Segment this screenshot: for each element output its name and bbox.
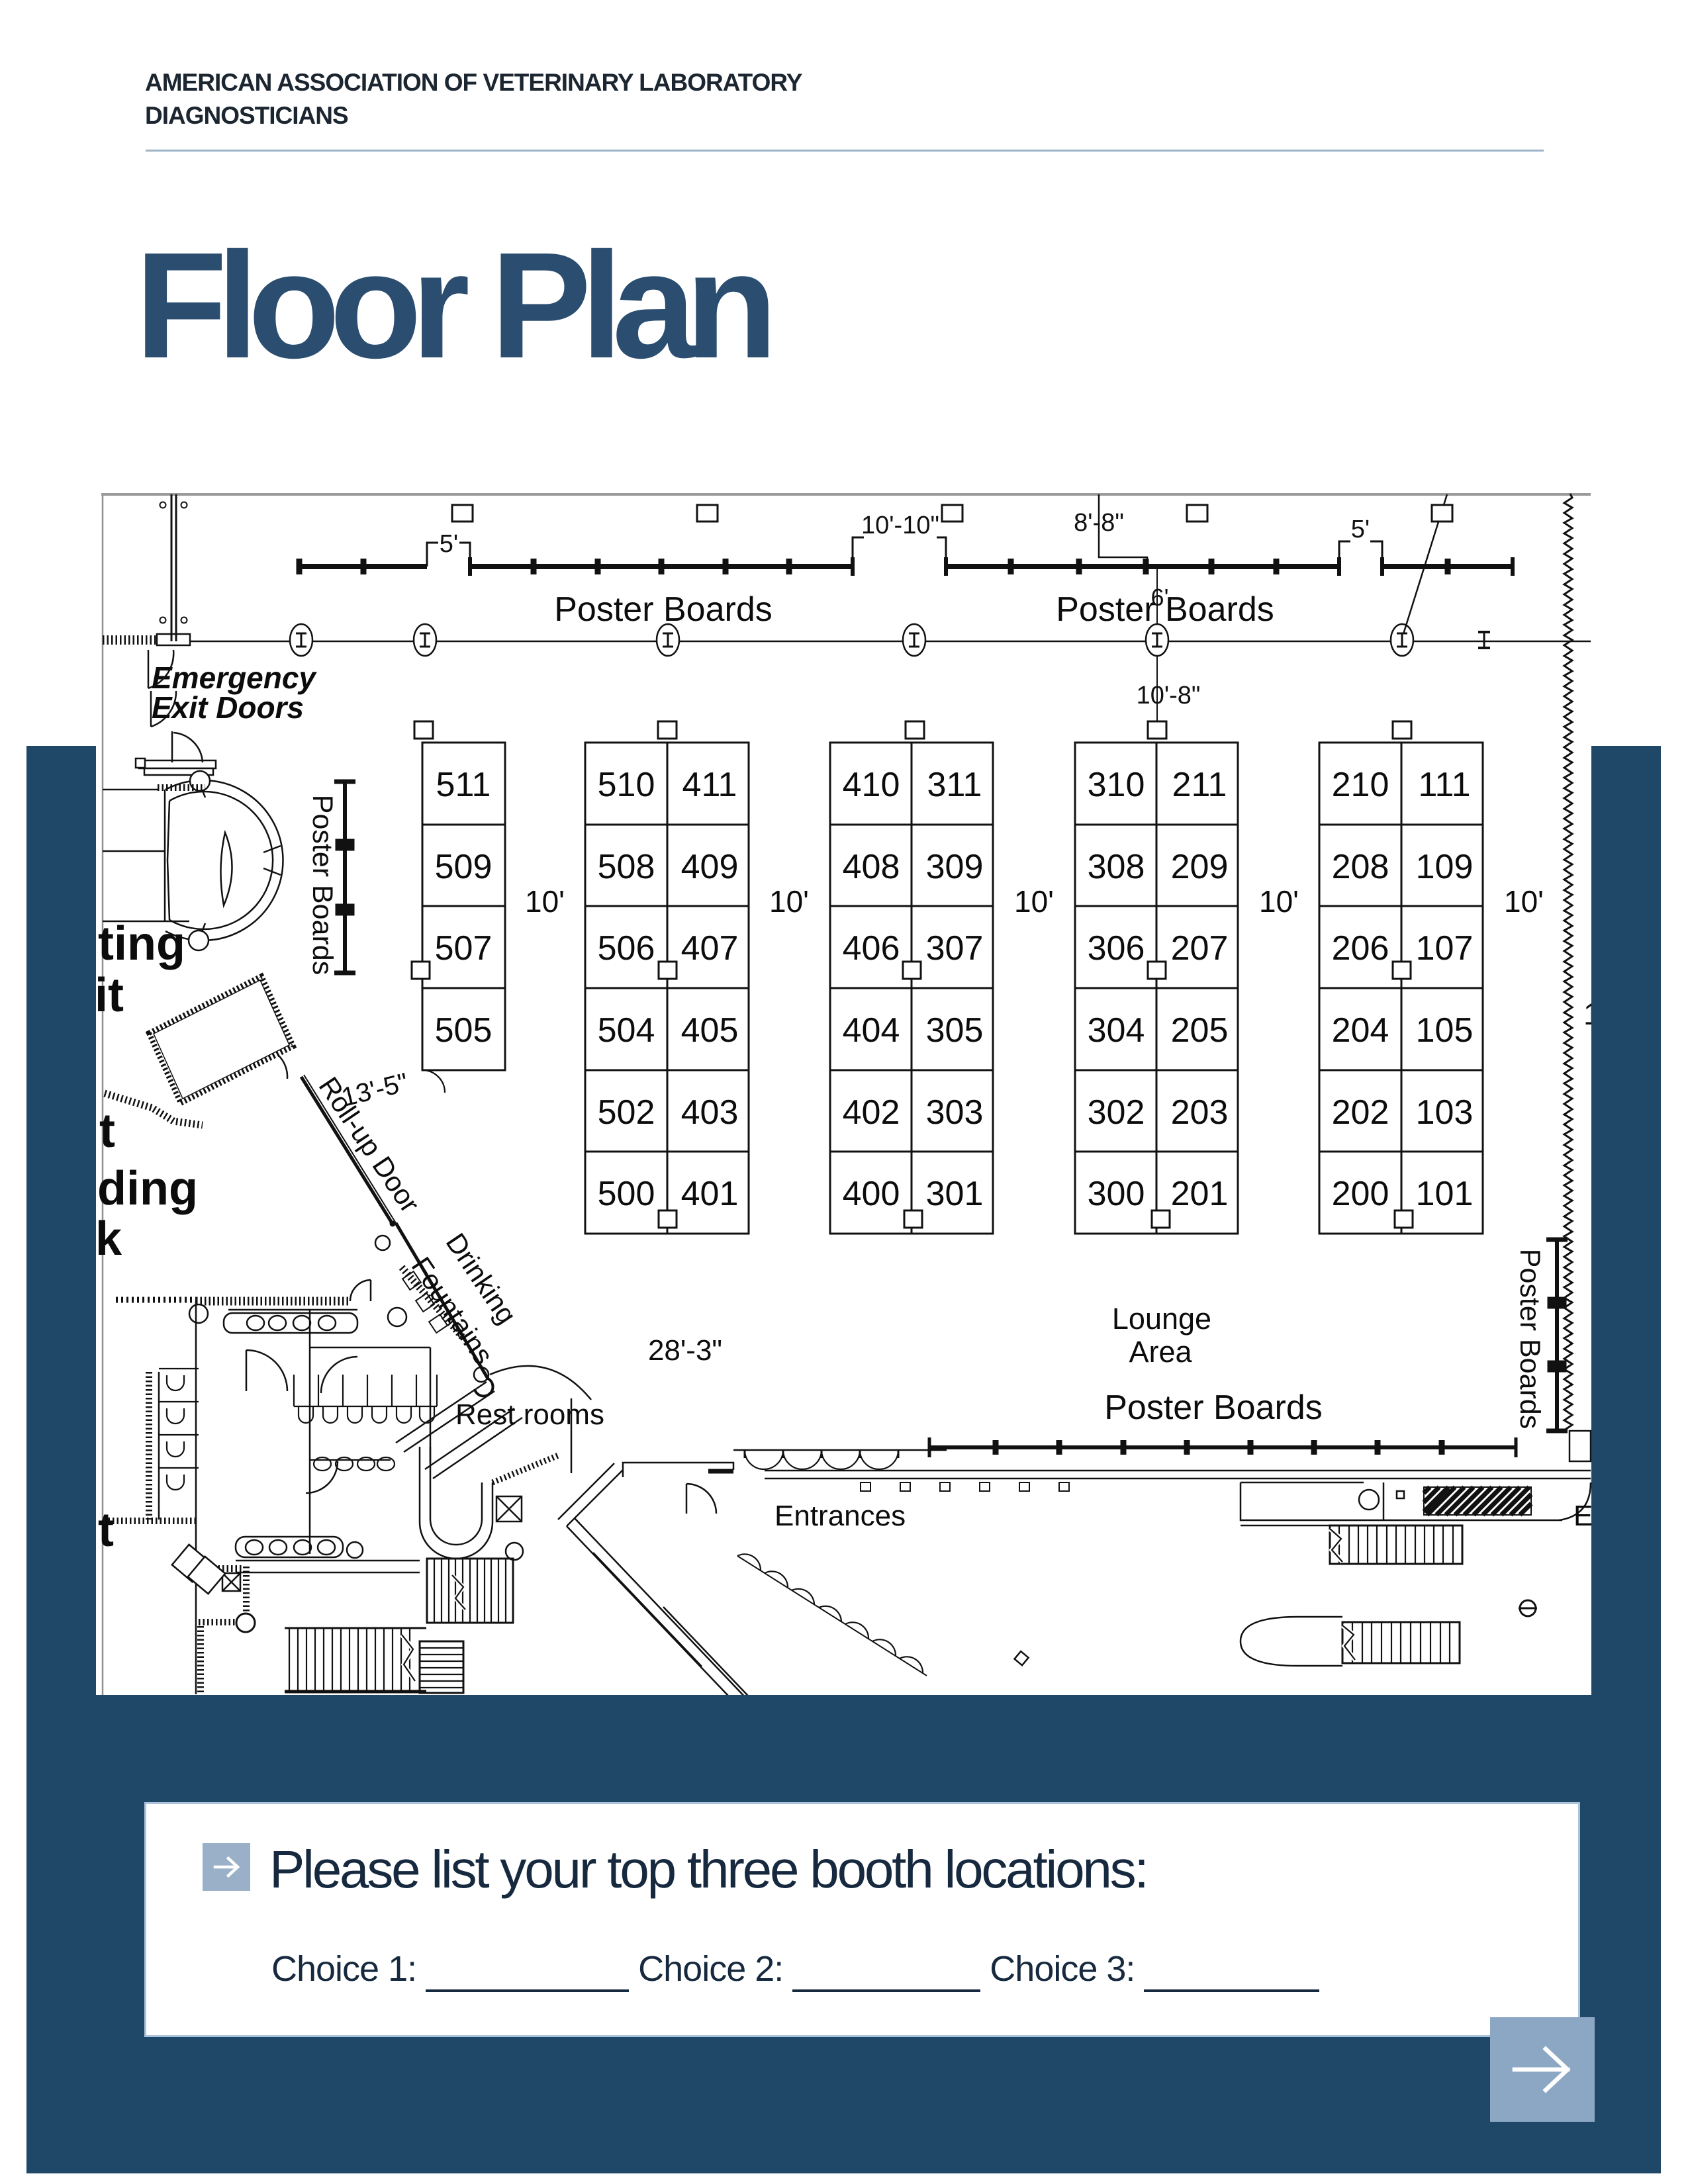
svg-text:304: 304	[1088, 1011, 1145, 1050]
svg-text:Poster Boards: Poster Boards	[1104, 1388, 1323, 1427]
svg-text:Area: Area	[1129, 1335, 1192, 1369]
svg-text:402: 402	[843, 1093, 900, 1132]
svg-text:204: 204	[1332, 1011, 1389, 1050]
svg-text:201: 201	[1171, 1175, 1229, 1213]
svg-text:505: 505	[435, 1011, 492, 1050]
svg-text:208: 208	[1332, 848, 1389, 886]
svg-text:506: 506	[598, 929, 655, 968]
svg-text:109: 109	[1416, 848, 1474, 886]
svg-text:10': 10'	[1014, 884, 1054, 919]
svg-text:210: 210	[1332, 766, 1389, 804]
svg-text:409: 409	[681, 848, 739, 886]
svg-text:6': 6'	[1151, 584, 1169, 611]
svg-text:209: 209	[1171, 848, 1229, 886]
svg-text:13'-5": 13'-5"	[339, 1068, 412, 1112]
svg-text:103: 103	[1416, 1093, 1474, 1132]
svg-text:511: 511	[436, 766, 491, 804]
svg-text:200: 200	[1332, 1175, 1389, 1213]
svg-text:507: 507	[435, 929, 492, 968]
svg-text:509: 509	[435, 848, 492, 886]
svg-text:502: 502	[598, 1093, 655, 1132]
svg-text:302: 302	[1088, 1093, 1145, 1132]
svg-text:Entrances: Entrances	[774, 1500, 906, 1532]
svg-text:10': 10'	[525, 884, 565, 919]
svg-text:411: 411	[682, 766, 737, 804]
svg-text:405: 405	[681, 1011, 739, 1050]
svg-text:Poster Boards: Poster Boards	[554, 590, 773, 629]
svg-text:101: 101	[1416, 1175, 1474, 1213]
svg-text:510: 510	[598, 766, 655, 804]
svg-text:307: 307	[926, 929, 984, 968]
svg-text:504: 504	[598, 1011, 655, 1050]
svg-text:500: 500	[598, 1175, 655, 1213]
svg-text:202: 202	[1332, 1093, 1389, 1132]
svg-text:ding: ding	[97, 1162, 198, 1215]
svg-text:Exit Doors: Exit Doors	[152, 690, 304, 725]
svg-text:Poster Boards: Poster Boards	[1514, 1249, 1546, 1429]
svg-text:10': 10'	[769, 884, 809, 919]
svg-text:403: 403	[681, 1093, 739, 1132]
svg-text:ting: ting	[98, 917, 185, 970]
svg-text:308: 308	[1088, 848, 1145, 886]
svg-text:400: 400	[843, 1175, 900, 1213]
svg-text:404: 404	[843, 1011, 900, 1050]
svg-text:309: 309	[926, 848, 984, 886]
svg-text:Rest rooms: Rest rooms	[455, 1398, 604, 1431]
svg-text:408: 408	[843, 848, 900, 886]
svg-text:111: 111	[1418, 766, 1470, 804]
svg-text:306: 306	[1088, 929, 1145, 968]
svg-text:205: 205	[1171, 1011, 1229, 1050]
svg-text:E: E	[1573, 1500, 1593, 1532]
svg-text:105: 105	[1416, 1011, 1474, 1050]
svg-text:206: 206	[1332, 929, 1389, 968]
svg-text:406: 406	[843, 929, 900, 968]
svg-text:508: 508	[598, 848, 655, 886]
svg-text:407: 407	[681, 929, 739, 968]
svg-text:310: 310	[1088, 766, 1145, 804]
svg-text:203: 203	[1171, 1093, 1229, 1132]
svg-text:t: t	[98, 1504, 114, 1557]
svg-text:t: t	[99, 1105, 115, 1158]
svg-text:Lounge: Lounge	[1112, 1302, 1211, 1336]
svg-text:305: 305	[926, 1011, 984, 1050]
svg-text:8'-8": 8'-8"	[1074, 509, 1124, 537]
svg-text:5': 5'	[1351, 516, 1370, 543]
svg-text:10'-10": 10'-10"	[861, 512, 939, 539]
svg-text:311: 311	[927, 766, 982, 804]
svg-text:Poster Boards: Poster Boards	[306, 795, 338, 975]
svg-text:207: 207	[1171, 929, 1229, 968]
svg-text:401: 401	[681, 1175, 739, 1213]
svg-text:10'-8": 10'-8"	[1137, 682, 1201, 709]
svg-text:107: 107	[1416, 929, 1474, 968]
svg-text:410: 410	[843, 766, 900, 804]
svg-text:it: it	[95, 969, 124, 1022]
svg-text:300: 300	[1088, 1175, 1145, 1213]
svg-text:211: 211	[1172, 766, 1227, 804]
svg-text:301: 301	[926, 1175, 984, 1213]
svg-text:10': 10'	[1504, 884, 1544, 919]
svg-text:28'-3": 28'-3"	[648, 1334, 722, 1367]
svg-text:5': 5'	[440, 530, 458, 558]
svg-text:10': 10'	[1259, 884, 1299, 919]
svg-text:303: 303	[926, 1093, 984, 1132]
svg-text:k: k	[95, 1212, 122, 1265]
